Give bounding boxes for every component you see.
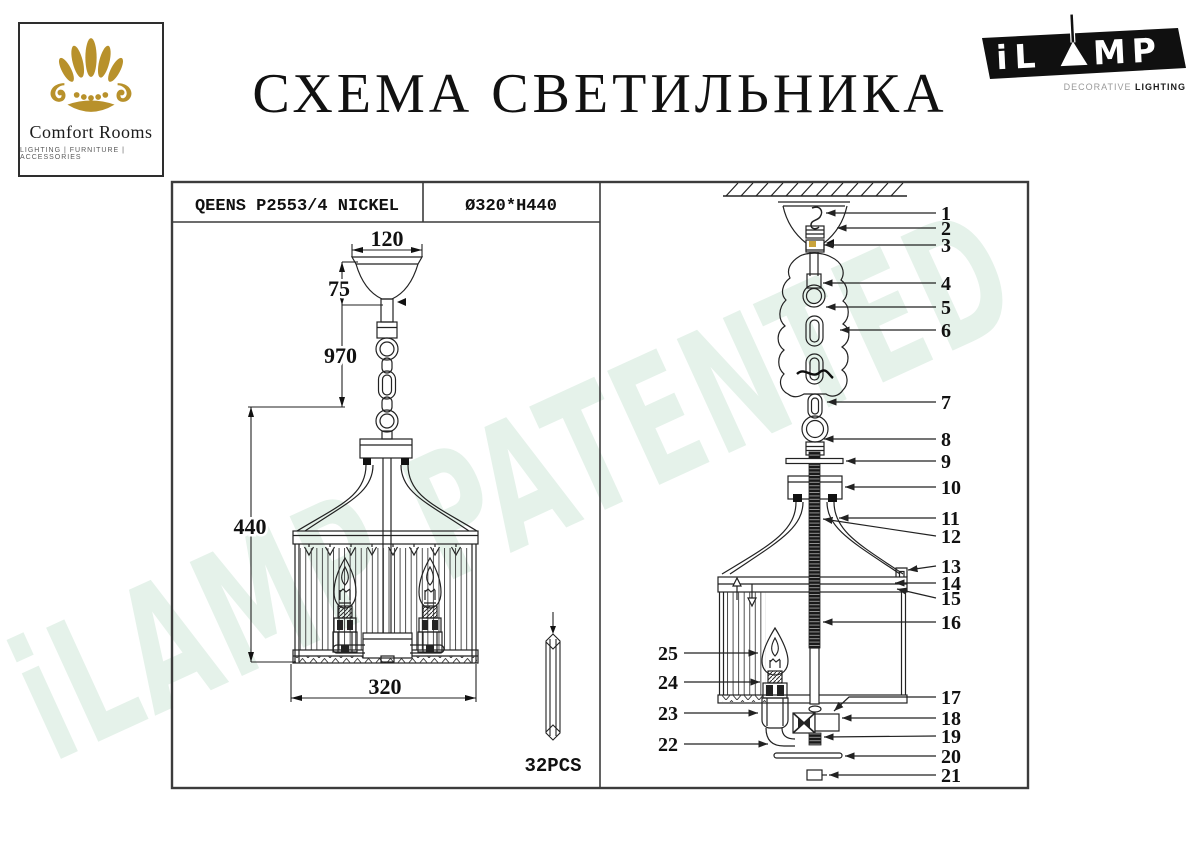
part-number-5: 5 (941, 297, 951, 319)
part-number-21: 21 (941, 765, 961, 787)
ceiling-hatch (726, 183, 903, 196)
crystal-count-label: 32PCS (524, 755, 581, 777)
part-number-25: 25 (658, 643, 678, 665)
part-number-4: 4 (941, 273, 951, 295)
ilamp-cord (1072, 15, 1073, 43)
hub-clamp (793, 713, 815, 733)
ilamp-logo: iL MP DECORATIVE LIGHTING (972, 8, 1194, 105)
set-screw-highlight (809, 241, 816, 247)
part-number-23: 23 (658, 703, 678, 725)
dim-canopy-height: 75 (328, 276, 350, 301)
part-number-16: 16 (941, 612, 961, 634)
part-number-7: 7 (941, 392, 951, 414)
svg-text:DECORATIVE LIGHTING: DECORATIVE LIGHTING (1064, 82, 1186, 92)
dim-body-diameter: 320 (369, 674, 402, 699)
schematic-sheet: iLAMP PATENTED Comfort Rooms LIGHTING | … (0, 0, 1200, 849)
part-number-12: 12 (941, 526, 961, 548)
ilamp-word-left: iL (995, 36, 1043, 77)
part-number-22: 22 (658, 734, 678, 756)
power-cord (797, 370, 833, 378)
part-number-19: 19 (941, 726, 961, 748)
frame-crystals (726, 592, 766, 695)
part-number-17: 17 (941, 687, 961, 709)
threaded-rod (809, 452, 820, 648)
part-number-3: 3 (941, 235, 951, 257)
dim-body-height: 440 (234, 514, 267, 539)
part-number-10: 10 (941, 477, 961, 499)
dim-suspension: 970 (324, 343, 357, 368)
part-number-8: 8 (941, 429, 951, 451)
part-number-6: 6 (941, 320, 951, 342)
left-projection (293, 257, 478, 663)
crystal-piece (546, 612, 560, 740)
part-number-15: 15 (941, 588, 961, 610)
part-number-9: 9 (941, 451, 951, 473)
ilamp-tag-light: DECORATIVE (1064, 82, 1135, 92)
ilamp-word-right: MP (1092, 30, 1163, 72)
brand-tagline: LIGHTING | FURNITURE | ACCESSORIES (20, 147, 162, 161)
right-exploded (718, 183, 907, 780)
technical-drawing: QEENS P2553/4 NICKEL Ø320*H440 (0, 0, 1200, 849)
model-label: QEENS P2553/4 NICKEL (195, 197, 399, 216)
part-number-24: 24 (658, 672, 678, 694)
dim-canopy-width: 120 (371, 226, 404, 251)
ilamp-tag-bold: LIGHTING (1135, 82, 1186, 92)
size-label: Ø320*H440 (465, 197, 557, 216)
